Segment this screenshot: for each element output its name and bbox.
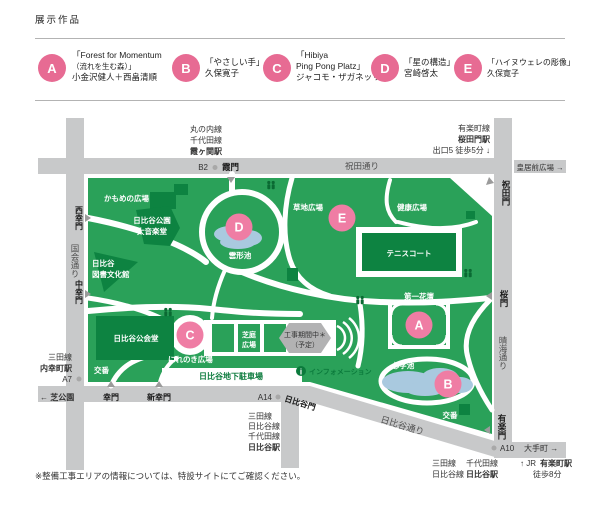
daiichi-kadan-label: 第一花壇 bbox=[404, 291, 434, 301]
station-name: 日比谷駅 bbox=[466, 469, 499, 479]
marker-e-legend: E bbox=[454, 54, 482, 82]
building bbox=[150, 192, 176, 209]
exit-label: A14 bbox=[258, 393, 273, 402]
iwaida-gate-label: 祝田門 bbox=[501, 179, 511, 206]
station-name: 有楽町駅 bbox=[540, 458, 573, 468]
marker-a-legend: A bbox=[38, 54, 66, 82]
marker-c-legend: C bbox=[263, 54, 291, 82]
information-icon-letter: i bbox=[300, 368, 302, 377]
kokyomae-sign: 皇居前広場 → bbox=[516, 162, 563, 172]
nakasaiwai-gate-label: 中幸門 bbox=[75, 279, 84, 305]
kenko-plaza-label: 健康広場 bbox=[397, 202, 427, 212]
exit-dot-icon bbox=[492, 446, 497, 451]
station-name: 内幸町駅 bbox=[40, 363, 73, 373]
artist-name: 久保寛子 bbox=[205, 68, 265, 79]
legend: 展示作品 A 「Forest for Momentum （流れを生む森）」 小金… bbox=[0, 0, 600, 110]
concert-hall-label-2: 大音楽堂 bbox=[137, 226, 167, 236]
koban-building bbox=[459, 404, 470, 415]
shinsaiwai-gate-label: 新幸門 bbox=[147, 392, 171, 402]
construction-label: 工事期間中＊ bbox=[284, 330, 326, 339]
station-name: 霞ヶ関駅 bbox=[190, 146, 223, 156]
koban-label-2: 交番 bbox=[443, 410, 458, 420]
station-line: 三田線 bbox=[432, 458, 456, 468]
shibakoen-sign: ← 芝公園 bbox=[40, 392, 74, 402]
artwork-title-2: （流れを生む森）」 bbox=[72, 61, 162, 72]
artwork-title: 「やさしい手」 bbox=[205, 57, 265, 68]
nishisaiwai-gate-label: 西幸門 bbox=[75, 206, 84, 231]
shibaniwa-label: 芝庭 bbox=[242, 330, 257, 339]
station-line: 丸の内線 bbox=[190, 124, 222, 134]
exit-dot-icon bbox=[213, 165, 218, 170]
shukuda-dori-label: 祝田通り bbox=[345, 161, 379, 171]
marker-letter: C bbox=[272, 61, 281, 76]
otemachi-sign: 大手町 → bbox=[524, 443, 558, 453]
exit-label: B2 bbox=[198, 163, 208, 172]
marker-c-letter: C bbox=[185, 329, 194, 343]
station-line: 千代田線 bbox=[466, 458, 498, 468]
kasumi-gate-label: 霞門 bbox=[222, 162, 239, 172]
artwork-title: 「星の構造」 bbox=[404, 57, 455, 68]
koban-label: 交番 bbox=[94, 365, 109, 375]
kusachi-plaza-label: 草地広場 bbox=[293, 202, 323, 212]
artwork-title: 「Hibiya bbox=[296, 50, 381, 61]
artist-name: 小金沢健人＋西畠清順 bbox=[72, 72, 162, 83]
kumogata-pond-label: 雲形池 bbox=[229, 250, 252, 260]
marker-letter: A bbox=[47, 61, 56, 76]
parking-label: 日比谷地下駐車場 bbox=[199, 371, 263, 381]
legend-heading: 展示作品 bbox=[35, 12, 81, 26]
divider bbox=[35, 100, 565, 101]
plot bbox=[212, 324, 234, 352]
nirenoki-plaza-label: にれのき広場 bbox=[168, 354, 213, 364]
library-label-2: 図書文化館 bbox=[92, 269, 130, 279]
road-shukuda-dori bbox=[38, 158, 512, 174]
artist-name: ジャコモ・ザガネッリ bbox=[296, 72, 381, 83]
yuraku-gate-label: 有楽門 bbox=[497, 413, 507, 440]
station-line: 日比谷線 bbox=[432, 469, 464, 479]
building bbox=[174, 184, 188, 195]
harumi-dori-label: 晴海通り bbox=[498, 335, 508, 370]
marker-e-letter: E bbox=[338, 212, 346, 226]
artwork-title: 「ハイヌウェレの彫像」 bbox=[487, 57, 575, 68]
station-name: 日比谷駅 bbox=[248, 442, 281, 452]
public-hall-label: 日比谷公会堂 bbox=[114, 333, 159, 343]
exit-dot-icon bbox=[276, 395, 281, 400]
shinji-pond-label: 心字池 bbox=[392, 360, 415, 370]
sakura-gate-label: 桜門 bbox=[499, 289, 509, 308]
shibaniwa-label-2: 広場 bbox=[242, 340, 256, 349]
marker-d-legend: D bbox=[371, 54, 399, 82]
artwork-title: 「Forest for Momentum bbox=[72, 50, 162, 61]
library-label: 日比谷 bbox=[92, 258, 115, 268]
exit-walk-label: 出口5 徒歩5分 ↓ bbox=[433, 145, 490, 155]
marker-letter: B bbox=[181, 61, 190, 76]
marker-b-letter: B bbox=[443, 378, 452, 392]
jr-prefix: ↑ JR bbox=[520, 459, 536, 468]
divider bbox=[35, 38, 565, 39]
walk-time-label: 徒歩8分 bbox=[533, 469, 561, 479]
exit-dot-icon bbox=[77, 377, 82, 382]
gate-arrow-icon bbox=[486, 177, 494, 185]
information-label: インフォメーション bbox=[309, 368, 372, 376]
marker-letter: D bbox=[380, 61, 389, 76]
station-name: 桜田門駅 bbox=[458, 134, 491, 144]
kokkai-dori-label: 国会通り bbox=[70, 244, 80, 278]
construction-label-2: （予定） bbox=[291, 340, 319, 349]
tennis-court-label: テニスコート bbox=[387, 249, 432, 258]
exit-label: A10 bbox=[500, 444, 515, 453]
station-line: 千代田線 bbox=[248, 431, 280, 441]
exit-label: A7 bbox=[62, 375, 72, 384]
artwork-title-2: Ping Pong Platz」 bbox=[296, 61, 381, 72]
saiwai-gate-label: 幸門 bbox=[103, 392, 119, 402]
page: 展示作品 A 「Forest for Momentum （流れを生む森）」 小金… bbox=[0, 0, 600, 519]
footer-note: ※整備工事エリアの情報については、特設サイトにてご確認ください。 bbox=[35, 470, 305, 482]
station-line: 三田線 bbox=[248, 411, 272, 421]
kamome-plaza-label: かもめの広場 bbox=[104, 193, 149, 203]
artist-name: 久保寛子 bbox=[487, 68, 575, 79]
station-line: 有楽町線 bbox=[458, 123, 490, 133]
marker-d-letter: D bbox=[234, 221, 243, 235]
station-line: 日比谷線 bbox=[248, 421, 280, 431]
station-line: 三田線 bbox=[48, 352, 72, 362]
park-map: 工事期間中＊ （予定） i インフォメーション 日比谷地下駐車場 かもめの広場 … bbox=[0, 110, 600, 482]
marker-a-letter: A bbox=[414, 319, 423, 333]
marker-letter: E bbox=[464, 61, 473, 76]
marker-b-legend: B bbox=[172, 54, 200, 82]
building bbox=[466, 211, 475, 219]
concert-hall-label: 日比谷公園 bbox=[133, 215, 171, 225]
building bbox=[287, 268, 298, 281]
artist-name: 宮崎啓太 bbox=[404, 68, 455, 79]
station-line: 千代田線 bbox=[190, 135, 222, 145]
